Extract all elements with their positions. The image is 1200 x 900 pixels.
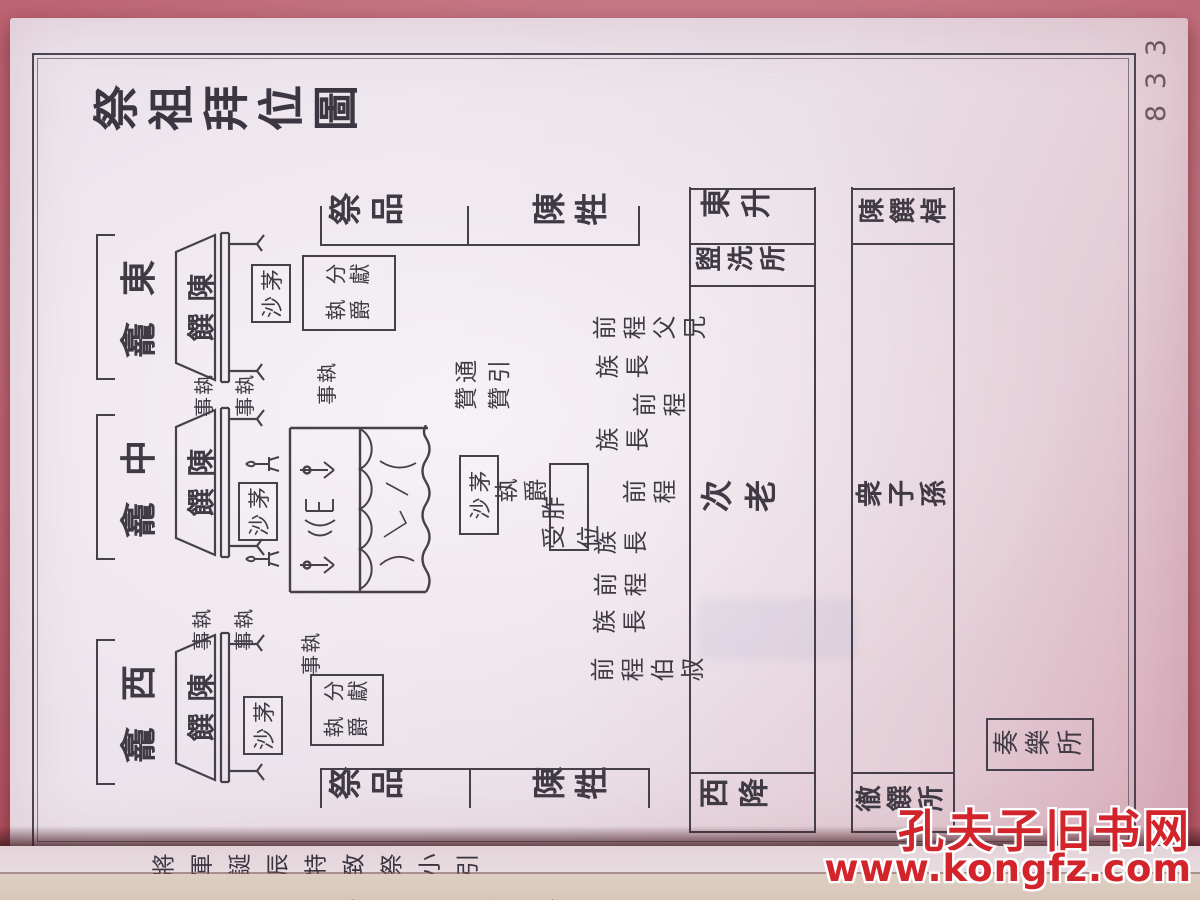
corridor-food-table: 陳饌棹 [858,194,951,231]
worshipper-position-label: 族長 [592,607,652,642]
char-glyph: 龕 [110,727,162,763]
char-glyph: 事 [229,397,258,417]
char-glyph: 饌 [180,489,220,517]
ink-bleed-smudge [697,598,857,660]
attendant-label: 執事 [229,373,258,419]
char-glyph: 茅 [255,269,287,291]
diagram-line [689,285,816,287]
char-glyph: 沙 [247,728,279,750]
char-glyph: 龕 [110,502,162,538]
char-glyph: 3 [1141,72,1172,89]
photographed-book-page: 祭祖拜位圖 東龕 中龕 西龕 [0,0,1200,900]
diagram-line [851,188,955,190]
corridor-washing-place: 盥洗所 [695,242,791,279]
attendant-label: 執事 [295,631,324,677]
corridor-descendants: 衆子孫 [855,476,951,515]
char-glyph: 事 [188,397,217,417]
shouzuo-box: 受胙位 [549,463,589,551]
fenxian-box-east: 分獻 執爵 [302,255,396,331]
diagram-line [648,768,650,808]
attendant-label: 執事 [228,607,257,653]
shrine-center-label: 中龕 [110,418,162,560]
fenxian-col-right: 分獻 [325,260,373,290]
usher-yinzan-label: 引贊 [480,357,514,413]
char-glyph: 中 [110,440,162,476]
char-glyph: 饌 [180,714,220,742]
corridor-east-ascend: 東升 [700,185,780,229]
char-glyph: 贊 [480,387,514,410]
char-glyph: 執 [311,363,340,383]
partial-large-characters: 國之有此典以緣七別鄉圖 [128,874,802,900]
diagram-stage: 祭祖拜位圖 東龕 中龕 西龕 [32,55,1132,845]
kongfz-watermark-url: www.kongfz.com [824,847,1192,890]
worshipper-position-label: 前程父兄 [592,313,712,348]
candlestick-icon [244,550,282,568]
char-glyph: 茅 [242,487,274,509]
book-page: 祭祖拜位圖 東龕 中龕 西龕 [10,18,1188,848]
corridor-second-elders: 次老 [700,475,788,521]
page-number: 338 [1148,32,1165,129]
char-glyph: 西 [110,665,162,701]
table-label: 陳饌 [180,405,220,560]
diagram-line [467,206,469,246]
char-glyph: 沙 [255,296,287,318]
worshipper-position-label: 前程 [632,390,692,425]
altar-table [288,425,434,595]
worshipper-position-label: 前程伯叔 [590,655,710,690]
diagram-title: 祭祖拜位圖 [92,79,367,145]
char-glyph: 茅 [463,470,495,492]
fenxian-col-left: 執爵 [323,713,371,743]
worshipper-position-label: 族長 [593,528,653,563]
char-glyph: 沙 [463,498,495,520]
char-glyph: 執 [188,375,217,395]
diagram-line [689,187,691,832]
char-glyph: 8 [1141,105,1172,122]
char-glyph: 事 [186,631,215,651]
shrine-east-label: 東龕 [110,238,162,380]
shrine-center: 中龕 [96,418,160,560]
maosha-box-west: 茅沙 [243,696,283,755]
worshipper-position-label: 族長 [595,425,655,460]
fenxian-box-west: 分獻 執爵 [310,674,384,746]
diagram-line [320,768,322,808]
candlestick-icon [244,455,282,473]
diagram-line [814,187,816,832]
diagram-line [320,206,322,246]
worshipper-position-label: 族長 [595,352,655,387]
diagram-line [689,188,816,190]
char-glyph: 執 [186,609,215,629]
diagram-line [851,772,955,774]
char-glyph: 事 [311,385,340,405]
diagram-line [689,243,816,245]
worshipper-position-label: 前程 [622,477,682,512]
diagram-line [320,244,640,246]
corridor-west-descend: 西降 [698,775,778,819]
char-glyph: 引 [480,360,514,383]
char-glyph: 沙 [242,514,274,536]
diagram-line [469,768,471,808]
offerings-upper-west: 祭品 [328,763,412,811]
char-glyph: 饌 [180,314,220,342]
offerings-upper-east: 祭品 [328,189,412,237]
usher-tongzan-label: 通贊 [447,357,481,413]
table-label: 陳饌 [180,230,220,385]
char-glyph: 3 [1141,39,1172,56]
worshipper-position-label: 前程 [593,570,653,605]
maosha-box-altar-front: 茅沙 [459,455,499,535]
offerings-lower-west: 陳牲 [532,763,616,811]
char-glyph: 陳 [180,673,220,701]
char-glyph: 陳 [180,273,220,301]
attendant-label: 執事 [311,361,340,407]
maosha-box-center: 茅沙 [238,482,278,541]
char-glyph: 陳 [180,448,220,476]
char-glyph: 執 [228,609,257,629]
diagram-line [320,768,650,770]
attendant-label: 執事 [188,373,217,419]
diagram-line [953,187,955,832]
music-place-label: 奏樂所 [992,726,1088,763]
attendant-label: 執事 [186,607,215,653]
char-glyph: 贊 [447,387,481,410]
char-glyph: 東 [110,260,162,296]
maosha-box-east: 茅沙 [251,264,291,323]
char-glyph: 執 [295,633,324,653]
music-place-box: 奏樂所 [986,718,1094,771]
shrine-east: 東龕 [96,238,160,380]
char-glyph: 通 [447,360,481,383]
shrine-west-label: 西龕 [110,643,162,785]
fenxian-col-right: 分獻 [323,677,371,707]
diagram-line [638,206,640,246]
offerings-lower-east: 陳牲 [532,189,616,237]
char-glyph: 龕 [110,322,162,358]
diagram-line [851,187,853,832]
char-glyph: 執 [229,375,258,395]
shrine-west: 西龕 [96,643,160,785]
char-glyph: 茅 [247,701,279,723]
char-glyph: 事 [228,631,257,651]
char-glyph: 事 [295,655,324,675]
fenxian-col-left: 執爵 [325,296,373,326]
diagram-line [851,243,955,245]
table-label: 陳饌 [180,630,220,785]
diagram-line [689,772,816,774]
